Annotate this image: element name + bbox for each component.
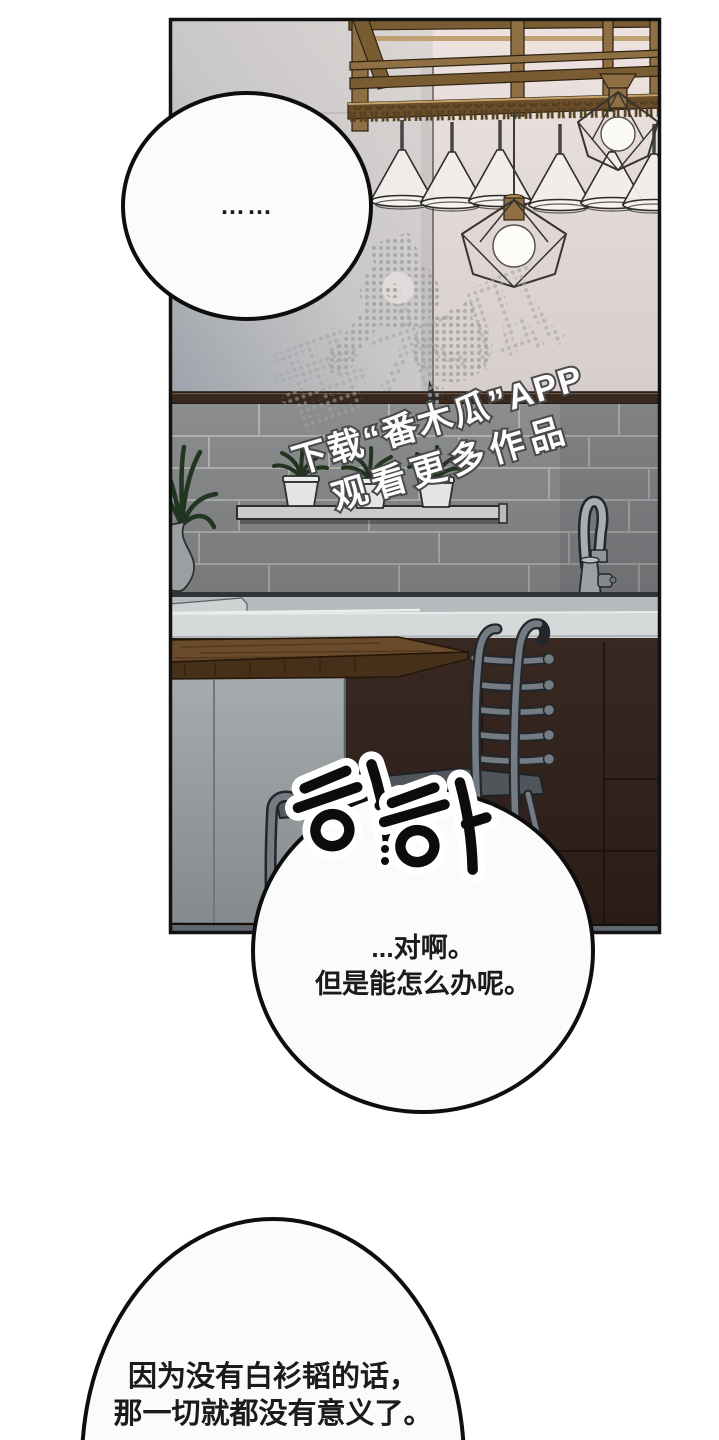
comic-page: 番木瓜 下载“番木瓜”APP 观看更多作品 …… ...对啊。 但是能怎么办呢。… (0, 0, 719, 1440)
sfx-layer (0, 0, 719, 1440)
